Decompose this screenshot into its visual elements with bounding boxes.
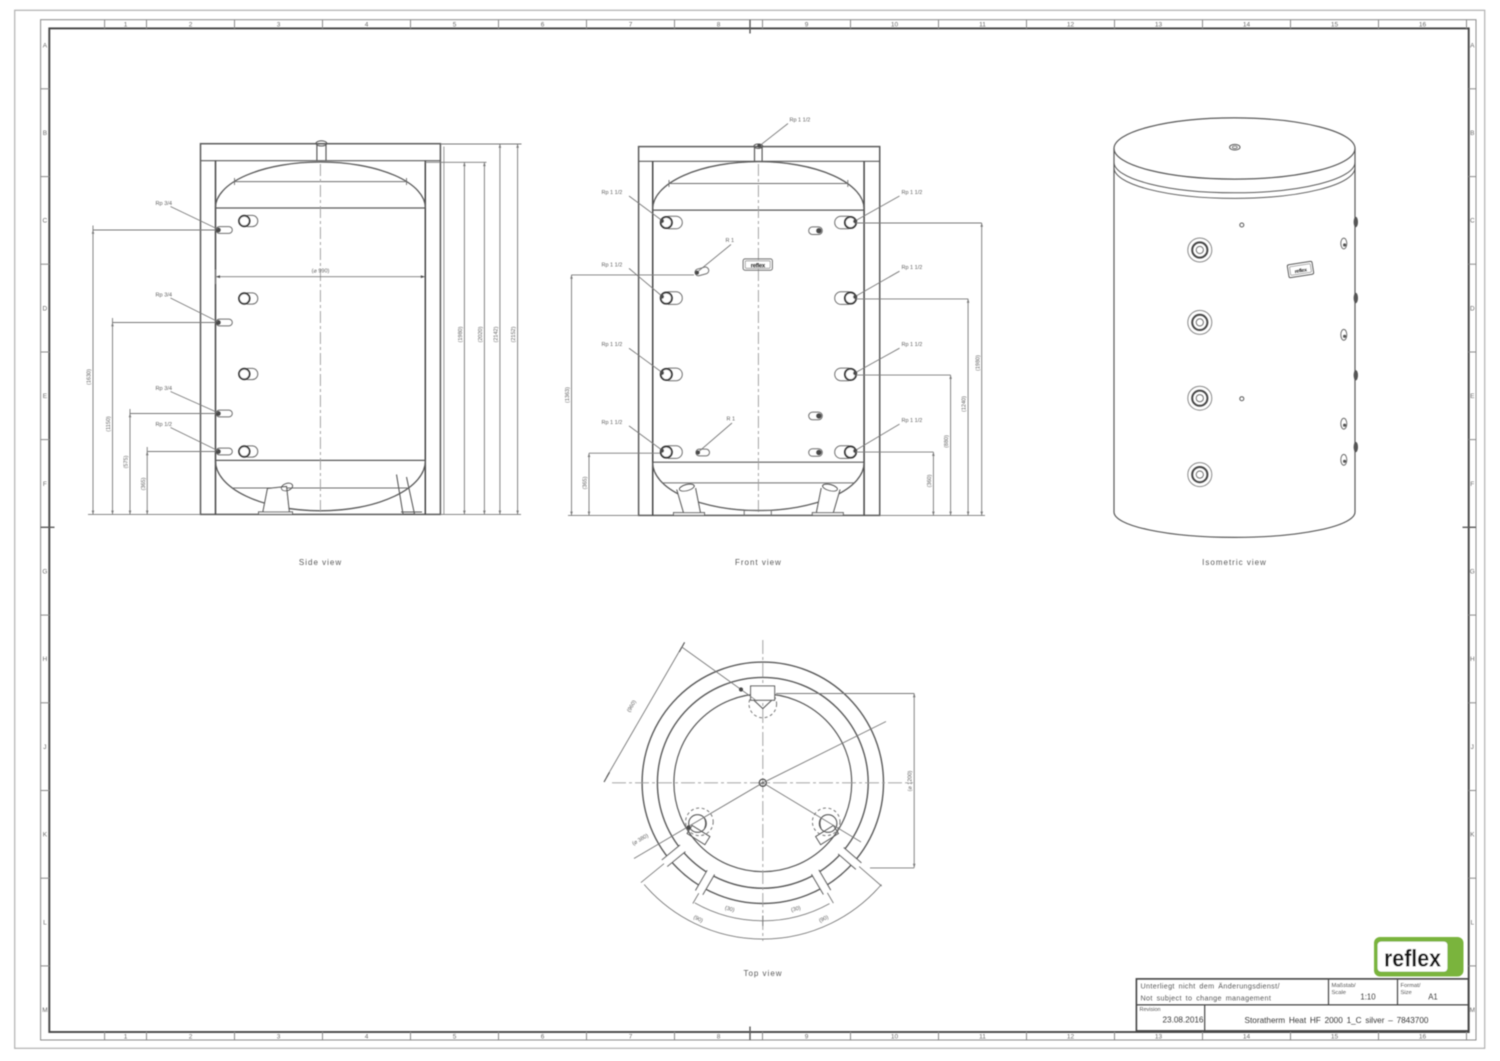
svg-text:Rp 1 1/2: Rp 1 1/2: [602, 262, 623, 268]
svg-text:D: D: [1470, 305, 1475, 312]
svg-text:A1: A1: [1428, 993, 1438, 1002]
svg-text:1: 1: [124, 22, 128, 29]
svg-text:Unterliegt nicht dem Änderungs: Unterliegt nicht dem Änderungsdienst/: [1141, 982, 1280, 991]
svg-text:10: 10: [891, 22, 899, 29]
svg-text:(365): (365): [141, 477, 147, 490]
svg-text:A: A: [1470, 42, 1475, 49]
svg-text:16: 16: [1419, 22, 1427, 29]
svg-text:15: 15: [1331, 1034, 1339, 1041]
svg-text:Rp 1 1/2: Rp 1 1/2: [902, 265, 923, 271]
svg-text:C: C: [1470, 218, 1475, 225]
svg-text:E: E: [43, 393, 48, 400]
svg-text:F: F: [43, 481, 47, 488]
svg-text:2: 2: [189, 1034, 193, 1041]
svg-text:Scale: Scale: [1332, 990, 1347, 996]
svg-text:reflex: reflex: [751, 264, 766, 270]
svg-text:M: M: [42, 1007, 47, 1014]
svg-text:11: 11: [979, 22, 986, 29]
svg-text:Rp 1 1/2: Rp 1 1/2: [902, 342, 923, 348]
svg-text:5: 5: [453, 1034, 457, 1041]
svg-text:K: K: [1470, 832, 1475, 839]
svg-text:Rp 1 1/2: Rp 1 1/2: [602, 342, 623, 348]
svg-text:Rp 3/4: Rp 3/4: [156, 201, 172, 207]
svg-text:3: 3: [277, 22, 281, 29]
svg-text:L: L: [1470, 919, 1474, 926]
svg-text:14: 14: [1243, 22, 1251, 29]
svg-text:12: 12: [1067, 1034, 1075, 1041]
svg-text:(575): (575): [124, 455, 130, 468]
svg-text:9: 9: [805, 1034, 809, 1041]
svg-text:Not subject to change manageme: Not subject to change management: [1141, 994, 1272, 1003]
svg-text:1: 1: [124, 1034, 128, 1041]
svg-text:7: 7: [629, 22, 633, 29]
svg-text:12: 12: [1067, 22, 1075, 29]
svg-text:(⌀ 1200): (⌀ 1200): [908, 770, 914, 791]
svg-text:L: L: [43, 919, 47, 926]
svg-text:E: E: [1470, 393, 1475, 400]
svg-text:Side view: Side view: [299, 558, 342, 567]
svg-text:R 1: R 1: [726, 238, 735, 244]
svg-text:Maßstab/: Maßstab/: [1332, 983, 1357, 989]
svg-text:(2152): (2152): [511, 326, 517, 342]
svg-text:11: 11: [979, 1034, 986, 1041]
svg-text:Format/: Format/: [1401, 983, 1421, 989]
svg-text:23.08.2016: 23.08.2016: [1163, 1016, 1204, 1025]
svg-text:8: 8: [717, 22, 721, 29]
svg-text:J: J: [1471, 744, 1474, 751]
svg-text:H: H: [43, 656, 48, 663]
svg-text:(1150): (1150): [106, 416, 112, 432]
svg-text:Rp 3/4: Rp 3/4: [156, 293, 172, 299]
svg-text:(1980): (1980): [975, 355, 981, 371]
svg-text:Rp 1 1/2: Rp 1 1/2: [790, 118, 811, 124]
svg-text:B: B: [43, 130, 47, 137]
svg-text:16: 16: [1419, 1034, 1427, 1041]
svg-text:4: 4: [365, 22, 369, 29]
svg-text:(1363): (1363): [565, 387, 571, 403]
svg-text:Front view: Front view: [735, 558, 782, 567]
svg-text:Storatherm Heat HF 2000 1_: Storatherm Heat HF 2000 1_C silver – 784…: [1245, 1016, 1429, 1025]
svg-text:Size: Size: [1401, 990, 1412, 996]
svg-text:(⌀ 990): (⌀ 990): [312, 269, 330, 275]
svg-text:A: A: [43, 42, 48, 49]
svg-text:(1240): (1240): [962, 396, 968, 412]
svg-text:Rp 1 1/2: Rp 1 1/2: [602, 190, 623, 196]
svg-text:3: 3: [277, 1034, 281, 1041]
svg-text:(1630): (1630): [87, 369, 93, 385]
svg-text:R 1: R 1: [727, 417, 736, 423]
svg-text:D: D: [43, 305, 48, 312]
svg-text:C: C: [43, 218, 48, 225]
svg-text:Isometric view: Isometric view: [1202, 558, 1267, 567]
svg-text:1:10: 1:10: [1360, 993, 1376, 1002]
svg-text:10: 10: [891, 1034, 899, 1041]
svg-text:6: 6: [541, 22, 545, 29]
svg-text:9: 9: [805, 22, 809, 29]
svg-text:4: 4: [365, 1034, 369, 1041]
svg-text:7: 7: [629, 1034, 633, 1041]
svg-text:(2020): (2020): [478, 326, 484, 342]
svg-text:G: G: [42, 569, 47, 576]
svg-text:Revision: Revision: [1140, 1007, 1161, 1013]
svg-text:reflex: reflex: [1384, 946, 1442, 973]
svg-text:G: G: [1470, 569, 1475, 576]
svg-text:Rp 3/4: Rp 3/4: [156, 386, 172, 392]
svg-text:5: 5: [453, 22, 457, 29]
svg-text:8: 8: [717, 1034, 721, 1041]
svg-text:(360): (360): [927, 474, 933, 487]
svg-text:13: 13: [1155, 1034, 1163, 1041]
svg-text:B: B: [1470, 130, 1474, 137]
svg-text:Top view: Top view: [743, 969, 782, 978]
svg-text:K: K: [43, 832, 48, 839]
svg-text:13: 13: [1155, 22, 1163, 29]
svg-text:J: J: [43, 744, 46, 751]
svg-text:14: 14: [1243, 1034, 1251, 1041]
svg-text:Rp 1 1/2: Rp 1 1/2: [902, 418, 923, 424]
svg-text:(1980): (1980): [458, 326, 464, 342]
svg-text:Rp 1 1/2: Rp 1 1/2: [602, 420, 623, 426]
svg-text:6: 6: [541, 1034, 545, 1041]
svg-text:2: 2: [189, 22, 193, 29]
svg-text:15: 15: [1331, 22, 1339, 29]
svg-text:(2142): (2142): [494, 326, 500, 342]
svg-text:Rp 1/2: Rp 1/2: [156, 422, 172, 428]
svg-text:M: M: [1470, 1007, 1475, 1014]
svg-text:H: H: [1470, 656, 1475, 663]
svg-text:Rp 1 1/2: Rp 1 1/2: [902, 190, 923, 196]
svg-text:(880): (880): [944, 435, 950, 448]
svg-text:F: F: [1470, 481, 1474, 488]
svg-text:(365): (365): [583, 476, 589, 489]
